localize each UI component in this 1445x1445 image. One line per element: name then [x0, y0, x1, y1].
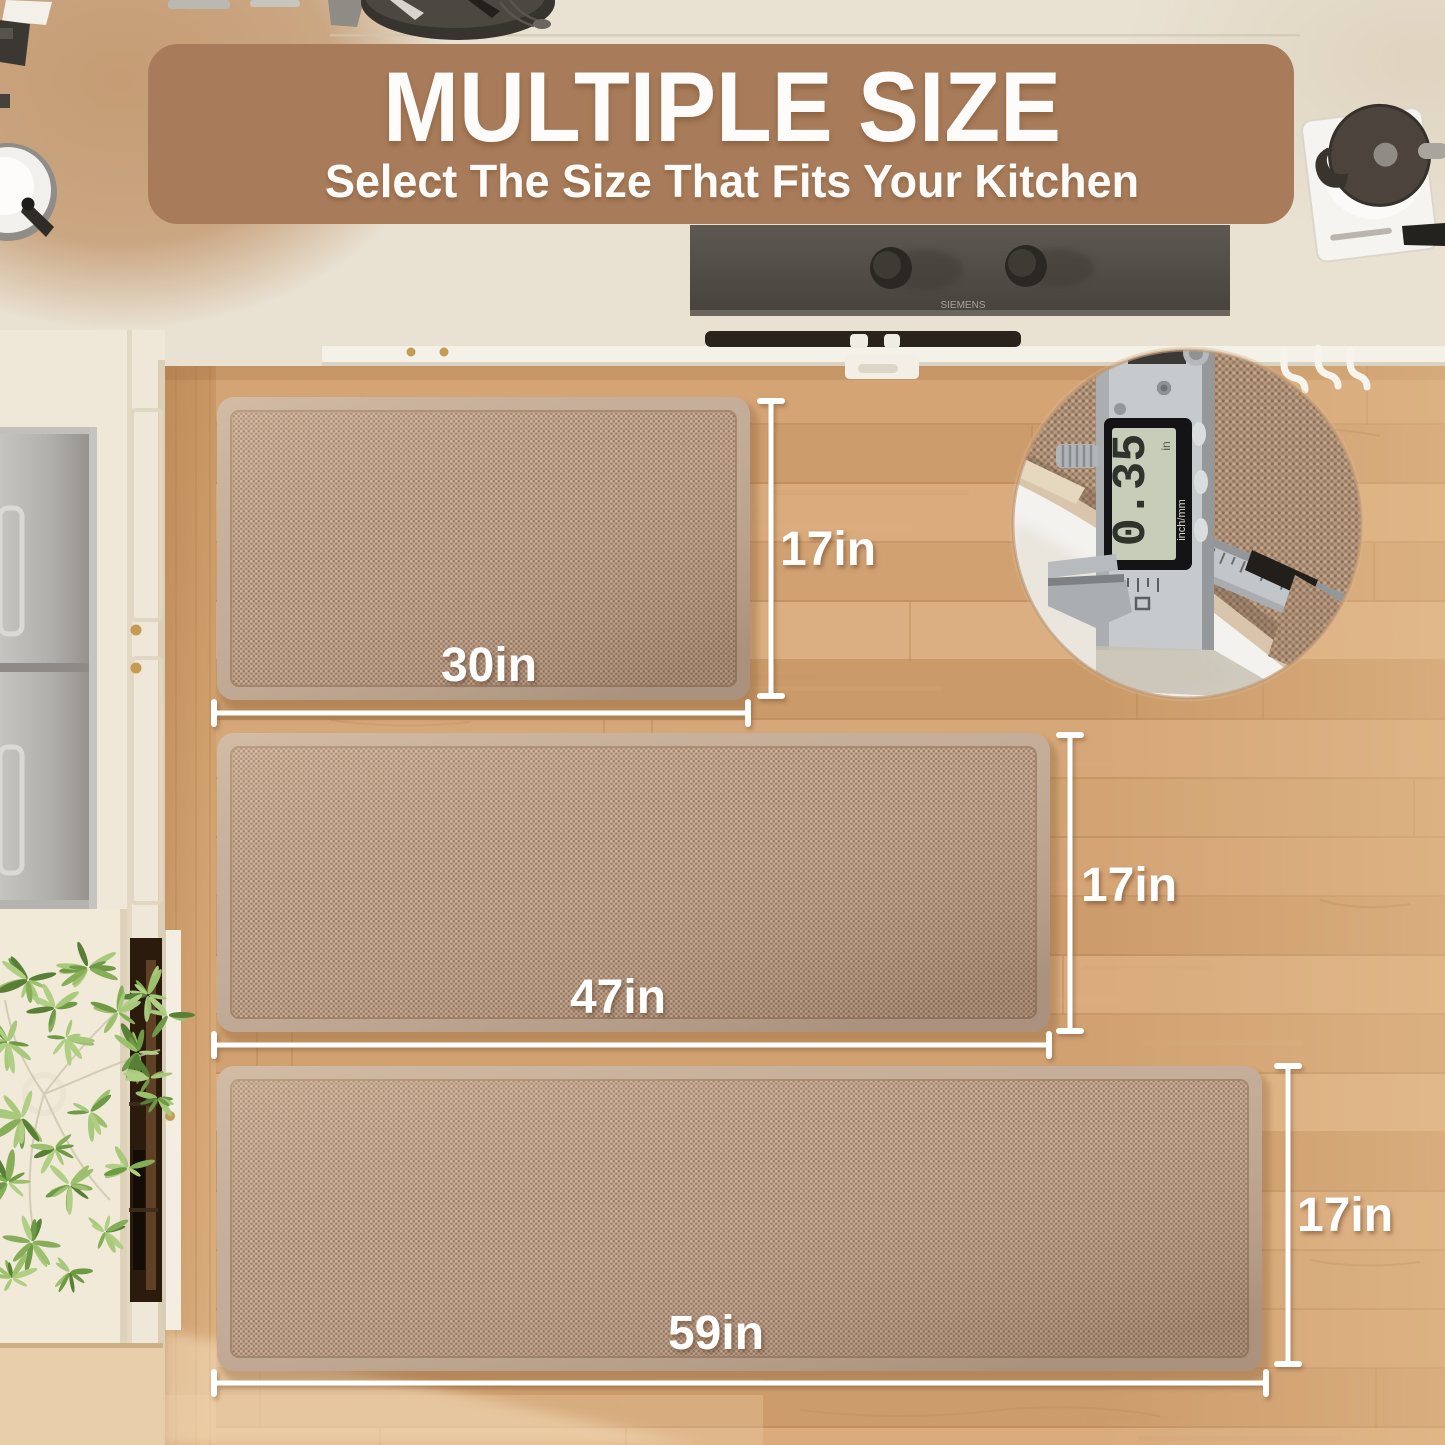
- svg-text:Select The Size That Fits Your: Select The Size That Fits Your Kitchen: [325, 155, 1139, 207]
- svg-text:inch/mm: inch/mm: [1176, 499, 1188, 541]
- svg-text:17in: 17in: [1081, 859, 1177, 912]
- svg-text:17in: 17in: [780, 523, 876, 576]
- svg-text:SIEMENS: SIEMENS: [940, 300, 985, 311]
- svg-text:30in: 30in: [441, 639, 537, 692]
- svg-text:in: in: [1159, 441, 1173, 450]
- svg-text:47in: 47in: [570, 971, 666, 1024]
- svg-text:MULTIPLE SIZE: MULTIPLE SIZE: [383, 51, 1061, 162]
- svg-text:0.35: 0.35: [1106, 434, 1159, 547]
- svg-text:59in: 59in: [668, 1307, 764, 1360]
- svg-text:17in: 17in: [1297, 1189, 1393, 1242]
